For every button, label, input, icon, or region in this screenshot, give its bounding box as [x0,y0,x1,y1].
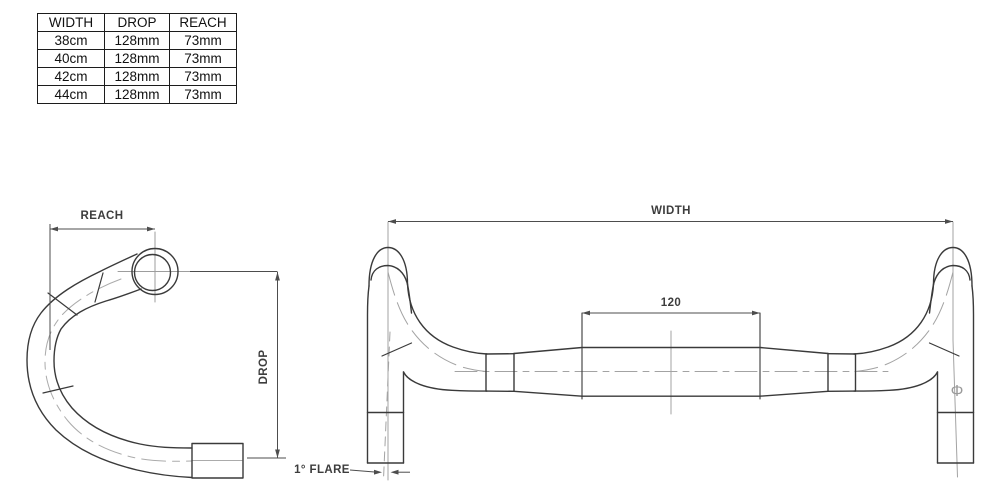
drop-dimension [190,272,286,459]
right-taper-bottom [760,391,828,396]
clamp-width-dimension [582,311,760,316]
side-tube-centerline [45,279,192,461]
technical-drawing [0,0,1000,484]
arrow-right [945,219,953,224]
right-hook-centerline [855,272,953,372]
bar-clamp-inner-circle [135,255,171,291]
flare-annotation [350,470,410,475]
arrow-left [50,227,58,232]
left-taper-bottom [514,391,582,396]
side-view-centerlines [118,232,190,302]
front-view-drawing [368,222,974,480]
diameter-symbol: Φ [951,383,964,401]
left-bend-silhouette [371,266,412,314]
left-taper-top [514,348,582,354]
reach-dimension-label: REACH [81,210,124,222]
right-bend-section-line [930,343,960,356]
width-dimension [388,219,953,224]
right-drop-outer-edge [972,286,974,463]
left-hook-centerline [388,272,486,372]
side-view-drawing [27,232,243,478]
handlebar-side-outer-edge [27,254,192,478]
right-flare-axis [953,340,958,477]
arrow-down [275,450,280,459]
width-dimension-label: WIDTH [651,205,691,217]
right-sweep-upper-edge [854,284,934,354]
arrow-left [391,470,399,475]
arrow-right [374,470,382,475]
left-sweep-upper-edge [408,284,488,354]
arrow-up [275,272,280,281]
flare-dimension-label: 1° FLARE [294,464,350,476]
right-bend-silhouette [930,266,971,314]
left-drop-outer-edge [368,286,370,463]
clamp-width-dimension-label: 120 [661,297,681,309]
front-view-centerlines [384,222,958,480]
left-bend-section-line [382,343,412,356]
arrow-right [147,227,155,232]
arrow-left [388,219,396,224]
drop-dimension-label: DROP [258,350,270,385]
arrow-left [582,311,590,316]
side-view-section-lines [43,273,103,393]
arrow-right [752,311,760,316]
right-taper-top [760,348,828,354]
left-sweep-lower-edge [404,372,488,391]
right-sweep-lower-edge [854,372,938,391]
handlebar-spec-sheet: WIDTH DROP REACH 38cm 128mm 73mm 40cm 12… [0,0,1000,484]
